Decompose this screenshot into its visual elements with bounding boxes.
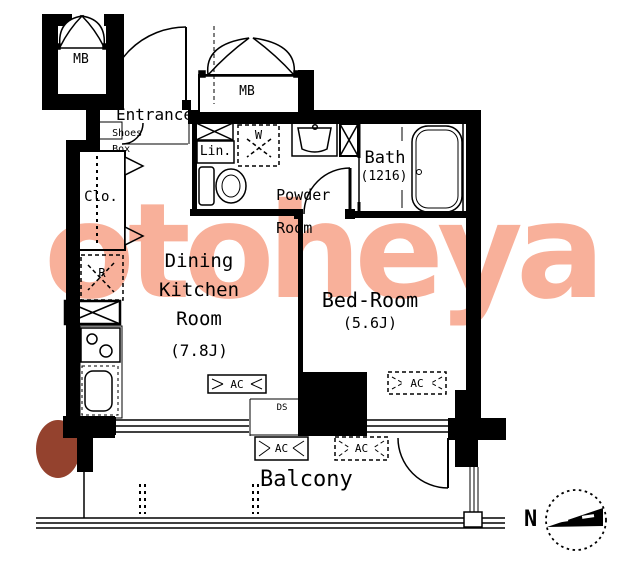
compass-icon [546, 490, 606, 550]
room-label-shoes-box: Shoes Box [88, 122, 122, 162]
compass-north-label: N [524, 507, 537, 532]
mb1-double-door-icon [55, 16, 108, 49]
room-label-meter-box-top: MB [198, 84, 296, 99]
ac-label-bedroom: AC [388, 372, 446, 394]
room-label-balcony: Balcony [260, 467, 353, 492]
balcony-door-icon [398, 438, 448, 488]
kitchen-sink-icon [80, 326, 122, 418]
ac-label-balcony-right: AC [335, 437, 388, 460]
window-bedroom [367, 420, 454, 432]
entrance-door-icon [106, 27, 186, 107]
ac-label-dining: AC [208, 375, 266, 393]
stove-icon [81, 328, 120, 362]
watermark-text: otoheya [44, 186, 598, 318]
washer-label: W [238, 128, 279, 142]
room-size-dining-kitchen: (7.8J) [146, 341, 252, 360]
ac-label-balcony-left: AC [255, 437, 308, 460]
watermark-blob [36, 420, 80, 478]
floor-plan: MB MB Entrance Shoes Box Lin. W Powder R… [0, 0, 640, 569]
balcony-divider-dashes [140, 484, 258, 514]
room-label-entrance: Entrance [116, 105, 193, 124]
window-dk [113, 420, 249, 432]
hatch-box-icon [196, 123, 233, 140]
room-label-bath: Bath [356, 148, 414, 168]
duct-space-label: DS [266, 403, 298, 413]
vanity-sink-icon [292, 123, 337, 156]
room-label-linen: Lin. [197, 141, 234, 163]
room-label-meter-box-left: MB [56, 52, 106, 67]
